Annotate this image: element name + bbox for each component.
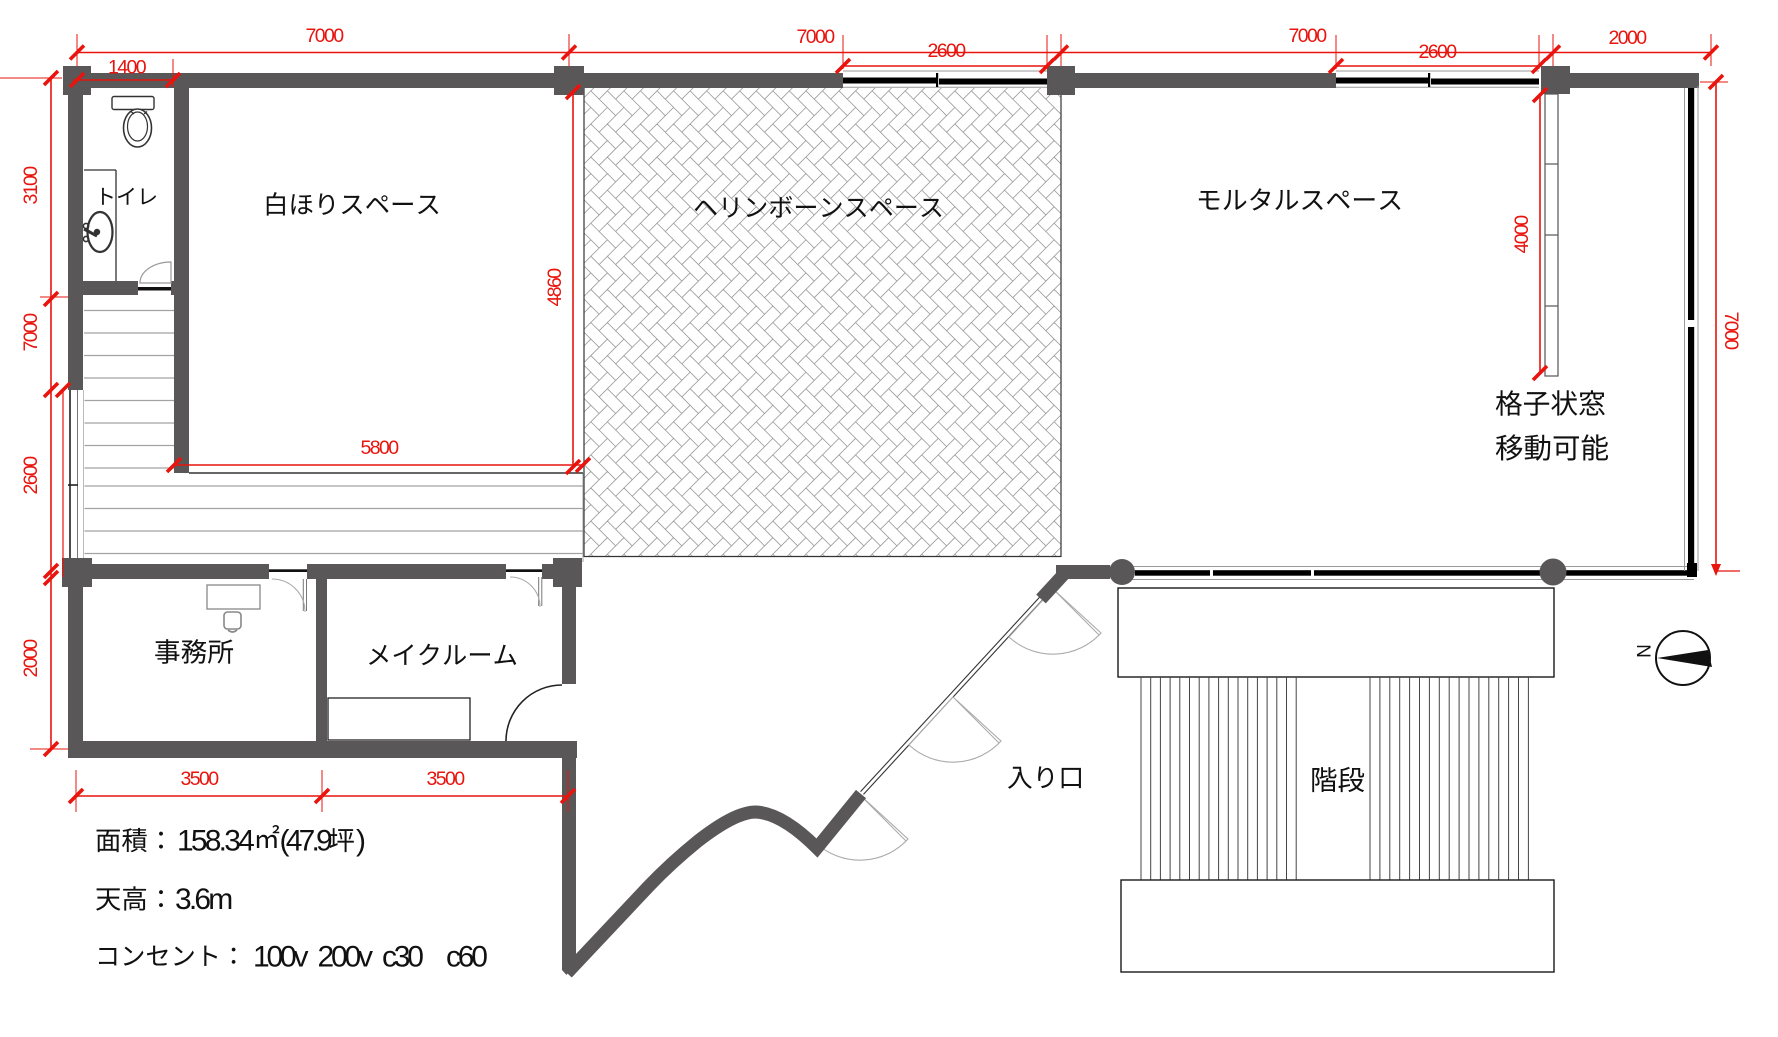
svg-text:c30: c30 <box>382 941 423 974</box>
svg-text:2000: 2000 <box>20 639 42 678</box>
svg-text:3.6m: 3.6m <box>175 883 232 916</box>
svg-text:7000: 7000 <box>1289 25 1328 47</box>
svg-text:158.34: 158.34 <box>177 825 254 858</box>
svg-text:4860: 4860 <box>544 268 566 307</box>
svg-text:2600: 2600 <box>1419 41 1458 63</box>
svg-text:4000: 4000 <box>1511 215 1533 254</box>
svg-text:7000: 7000 <box>20 313 42 352</box>
svg-text:100v: 100v <box>253 941 308 974</box>
svg-text:3100: 3100 <box>20 166 42 205</box>
svg-text:7000: 7000 <box>1720 312 1742 351</box>
svg-text:5800: 5800 <box>361 437 400 459</box>
svg-text:3500: 3500 <box>181 768 220 790</box>
svg-text:1400: 1400 <box>108 57 147 79</box>
svg-text:7000: 7000 <box>306 25 345 47</box>
svg-text:c60: c60 <box>446 941 487 974</box>
svg-text:N: N <box>1635 644 1656 658</box>
svg-text:2600: 2600 <box>20 456 42 495</box>
svg-text:7000: 7000 <box>797 26 836 48</box>
svg-text:(47.9: (47.9 <box>280 825 332 858</box>
svg-text:200v: 200v <box>318 941 373 974</box>
svg-text:2600: 2600 <box>928 40 967 62</box>
svg-text:3500: 3500 <box>427 768 466 790</box>
svg-text:2000: 2000 <box>1609 27 1648 49</box>
